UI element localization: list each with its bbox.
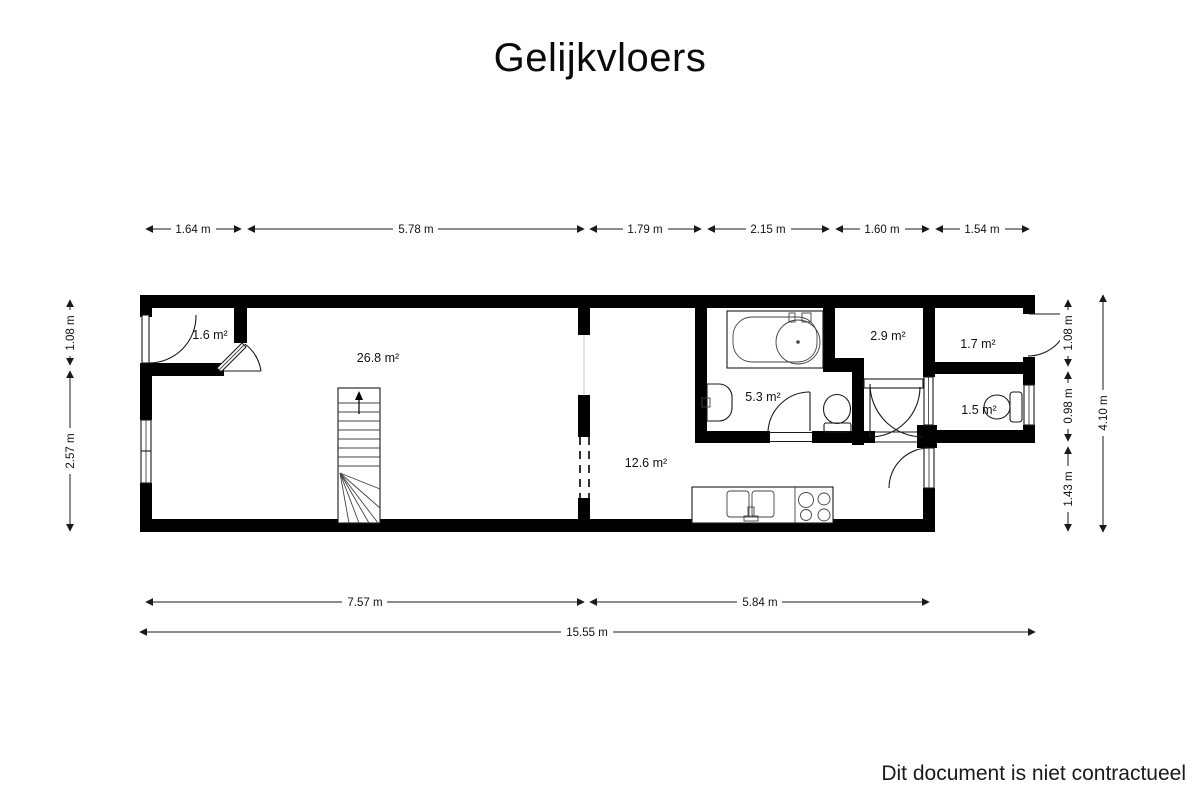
room-label-wc: 1.5 m² <box>961 403 996 417</box>
dim-right-2: 1.43 m <box>1063 471 1075 506</box>
storage-doorway <box>864 379 923 437</box>
washbasin <box>702 384 732 421</box>
dim-top-4: 1.60 m <box>864 224 899 236</box>
room-label-bathroom: 5.3 m² <box>745 390 780 404</box>
bathroom-toilet <box>824 395 852 433</box>
living-window <box>141 420 151 483</box>
bathtub <box>727 311 823 368</box>
room-label-rearhall: 1.7 m² <box>960 337 995 351</box>
kitchen-counter <box>692 487 833 523</box>
dim-left-0: 1.08 m <box>65 315 77 350</box>
dim-left-1: 2.57 m <box>65 433 77 468</box>
room-label-kitchen: 12.6 m² <box>625 456 667 470</box>
dim-top-5: 1.54 m <box>964 224 999 236</box>
room-label-hall: 1.6 m² <box>192 328 227 342</box>
dim-top-2: 1.79 m <box>627 224 662 236</box>
dim-right-1: 0.98 m <box>1063 388 1075 423</box>
room-label-storage: 2.9 m² <box>870 329 905 343</box>
dim-top-1: 5.78 m <box>398 224 433 236</box>
dim-right-total: 4.10 m <box>1098 395 1110 430</box>
door-swing-arc <box>245 344 261 371</box>
floorplan-page: Gelijkvloers <box>0 0 1200 801</box>
dimension-lines-right: 1.08 m 0.98 m 1.43 m 4.10 m <box>1060 295 1111 532</box>
dim-bottom-0: 7.57 m <box>347 597 382 609</box>
dim-top-3: 2.15 m <box>750 224 785 236</box>
hallway-opening <box>875 432 917 442</box>
wc-window <box>1024 385 1034 425</box>
dim-top-0: 1.64 m <box>175 224 210 236</box>
dimension-lines-left: 1.08 m 2.57 m <box>62 300 78 531</box>
dimension-lines-top: 1.64 m 5.78 m 1.79 m 2.15 m 1.60 m 1.54 … <box>146 221 1029 236</box>
floorplan-drawing: 1.6 m² 26.8 m² 12.6 m² 5.3 m² 2.9 m² 1.7… <box>0 0 1200 801</box>
entrance-door <box>142 315 196 363</box>
hall-diagonal-door <box>217 343 261 372</box>
garden-door <box>889 448 934 488</box>
dim-right-0: 1.08 m <box>1063 315 1075 350</box>
room-label-living: 26.8 m² <box>357 351 399 365</box>
door-swing-arc <box>889 448 929 488</box>
door-swing-arc <box>149 315 196 363</box>
dimension-lines-bottom: 7.57 m 5.84 m 15.55 m <box>140 594 1035 639</box>
disclaimer-text: Dit document is niet contractueel <box>881 762 1186 786</box>
dim-bottom-total: 15.55 m <box>566 627 608 639</box>
dim-bottom-1: 5.84 m <box>742 597 777 609</box>
staircase <box>338 388 380 523</box>
wc-door <box>924 377 933 425</box>
